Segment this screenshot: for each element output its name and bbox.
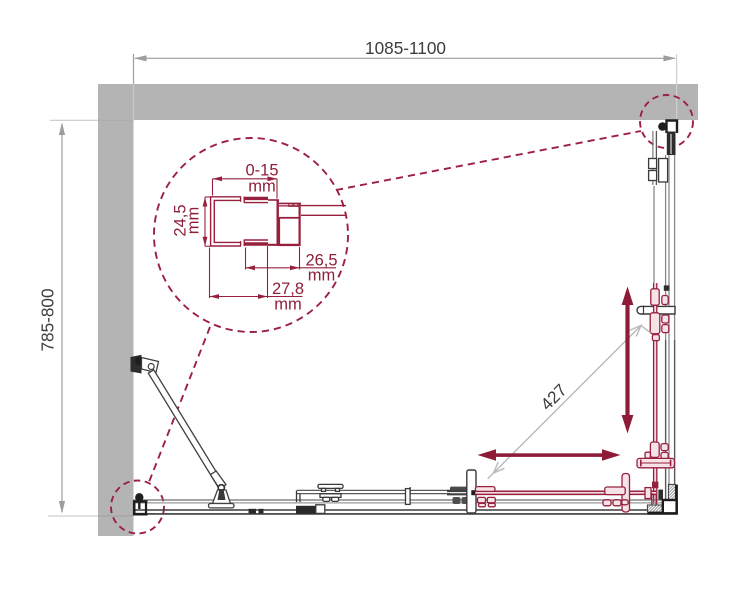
- svg-text:mm: mm: [248, 178, 276, 196]
- svg-text:mm: mm: [185, 207, 203, 235]
- svg-text:mm: mm: [274, 296, 302, 314]
- svg-text:785-800: 785-800: [38, 288, 58, 351]
- svg-text:1085-1100: 1085-1100: [365, 38, 446, 58]
- svg-text:mm: mm: [308, 267, 336, 285]
